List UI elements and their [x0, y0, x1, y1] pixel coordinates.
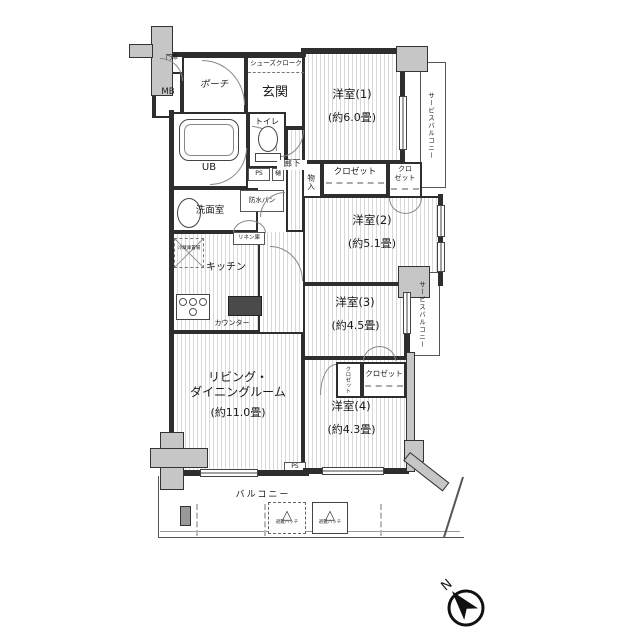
toilet-bowl	[258, 126, 278, 152]
mb-label: MB	[154, 88, 182, 98]
service-balcony-2-label: サービスバルコニー	[417, 280, 424, 350]
service-balcony-1-label: サービスバルコニー	[426, 76, 433, 176]
living-name-line1-label: リビング・	[178, 371, 298, 385]
bathtub	[179, 119, 239, 161]
stove-burner-icon	[179, 298, 187, 306]
stove-burner-icon	[189, 308, 197, 316]
floorplan-canvas: △ 避難ハッチ △ 避難ハッチ 門扉 MB ポーチ 玄関 シューズクローク 洋室…	[0, 0, 640, 640]
western4-name-label: 洋室(4)	[306, 400, 396, 413]
closet-4-label: クロゼット	[344, 364, 350, 396]
window-western2-lower	[437, 242, 445, 272]
western3-area-label: (約4.5畳)	[308, 320, 403, 333]
ps-1-label: PS	[248, 171, 270, 178]
corridor-label: 廊下	[277, 160, 307, 170]
western4-area-label: (約4.3畳)	[304, 424, 399, 437]
balcony-partition-3	[380, 504, 382, 536]
compass-north-label: N	[438, 577, 455, 595]
window-western2-upper	[437, 205, 445, 237]
closet-2-dash	[391, 188, 419, 190]
porch-label: ポーチ	[186, 80, 242, 91]
monoire-label: 物入	[306, 168, 315, 196]
gate-label: 門扉	[160, 55, 184, 62]
area-ld-strip	[260, 232, 303, 332]
wall-left-exterior	[169, 110, 174, 474]
stove-burner-icon	[189, 298, 197, 306]
escape-hatch: △ 避難ハッチ	[312, 502, 348, 534]
unit-bath-label: UB	[194, 162, 224, 174]
pillar-top-right	[396, 46, 428, 72]
window-living	[200, 469, 258, 477]
kitchen-stove	[176, 294, 210, 320]
balcony-label: バルコニー	[228, 490, 298, 500]
closet-3-dash	[365, 385, 403, 387]
compass: N	[428, 566, 500, 638]
western1-area-label: (約6.0畳)	[307, 112, 397, 125]
closet-2-label-line1: クロ	[390, 165, 420, 173]
western1-name-label: 洋室(1)	[312, 88, 392, 101]
western3-name-label: 洋室(3)	[310, 296, 400, 309]
escape-hatch-upper-floor: △ 避難ハッチ	[268, 502, 306, 534]
room-western1	[303, 52, 402, 162]
closet-2-label-line2: ゼット	[390, 174, 420, 182]
counter-label: カウンター	[204, 319, 260, 327]
toilet-label: トイレ	[251, 117, 283, 126]
stove-burner-icon	[199, 298, 207, 306]
pipe-label: 樋	[272, 171, 284, 178]
kitchen-counter-sink	[228, 296, 262, 316]
balcony-drain-pipe	[180, 506, 191, 526]
western2-area-label: (約5.1畳)	[327, 238, 417, 251]
escape-hatch-label: 避難ハッチ	[319, 521, 342, 526]
ps-2-label: PS	[284, 464, 306, 471]
pillar-bottom-left-h	[150, 448, 208, 468]
fridge-label: 冷蔵庫置場	[176, 246, 202, 251]
balcony-inner-line	[160, 531, 460, 532]
western2-name-label: 洋室(2)	[330, 214, 414, 227]
closet-3-label: クロゼット	[363, 370, 405, 379]
area-balcony	[158, 476, 464, 538]
escape-hatch-label: 避難ハッチ	[276, 521, 299, 526]
genkan-label: 玄関	[252, 86, 298, 101]
linen-label: リネン庫	[234, 235, 264, 241]
balcony-partition-2	[264, 504, 266, 536]
window-western4	[322, 467, 384, 475]
washroom-label: 洗面室	[182, 206, 238, 217]
closet-1-label: クロゼット	[324, 168, 386, 178]
kitchen-label: キッチン	[198, 262, 254, 274]
closet-1-dash	[326, 182, 384, 184]
window-western1	[399, 96, 407, 150]
window-western3	[403, 292, 411, 334]
waterproof-pan-label: 防水パン	[241, 197, 283, 204]
shoe-cloak-label: シューズクローク	[247, 60, 305, 67]
pillar-top-left-h	[129, 44, 153, 58]
living-name-line2-label: ダイニングルーム	[178, 386, 298, 400]
closet-3	[362, 362, 406, 398]
living-area-label: (約11.0畳)	[178, 407, 298, 420]
balcony-partition-1	[196, 504, 198, 536]
wall-top-western1	[301, 48, 404, 53]
